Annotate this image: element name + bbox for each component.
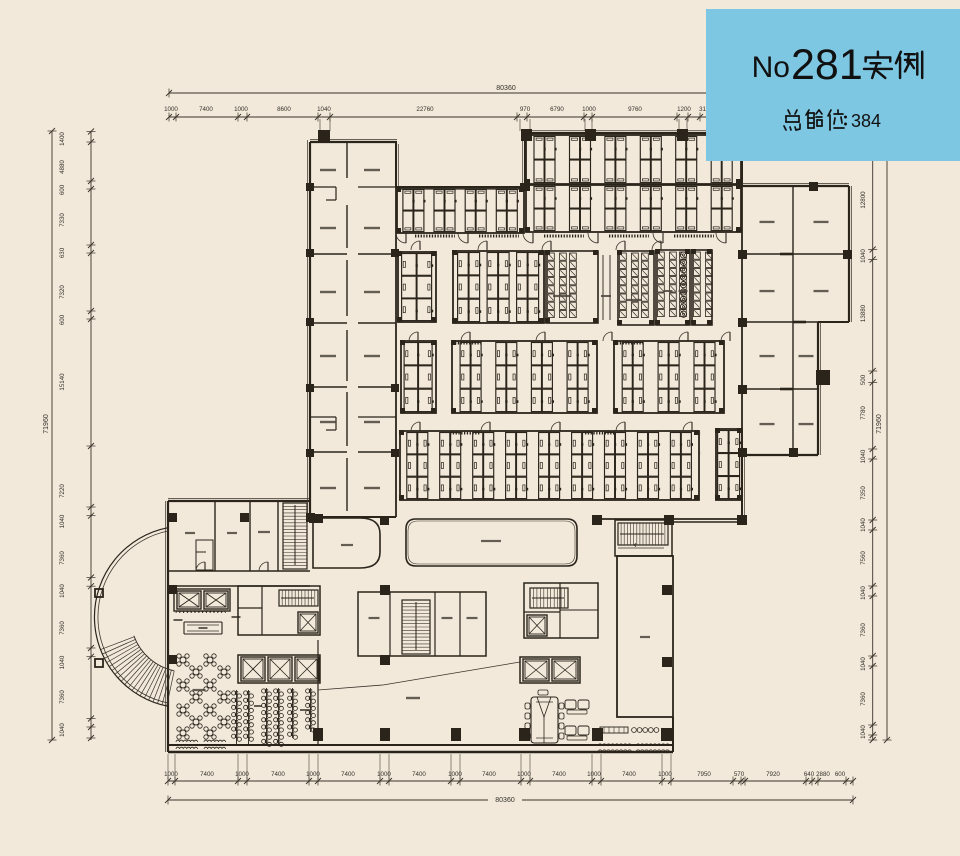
svg-text:7920: 7920 — [766, 771, 780, 778]
svg-text:7400: 7400 — [200, 771, 214, 778]
svg-text:630: 630 — [59, 247, 66, 258]
svg-text:7560: 7560 — [860, 551, 867, 565]
svg-text:7950: 7950 — [697, 771, 711, 778]
svg-text:7360: 7360 — [860, 623, 867, 637]
svg-text:1000: 1000 — [377, 771, 391, 778]
svg-text:71960: 71960 — [876, 414, 883, 434]
svg-text:1000: 1000 — [164, 771, 178, 778]
svg-text:1040: 1040 — [59, 514, 66, 528]
svg-text:1400: 1400 — [59, 132, 66, 146]
svg-text:1040: 1040 — [317, 106, 331, 113]
svg-text:12800: 12800 — [860, 191, 867, 209]
svg-text:7400: 7400 — [482, 771, 496, 778]
svg-text:1000: 1000 — [164, 106, 178, 113]
svg-text:4880: 4880 — [59, 160, 66, 174]
svg-text:1000: 1000 — [587, 771, 601, 778]
svg-text:7360: 7360 — [860, 692, 867, 706]
svg-text:7780: 7780 — [860, 406, 867, 420]
svg-text:281: 281 — [791, 41, 863, 89]
svg-text:1040: 1040 — [59, 584, 66, 598]
svg-text:7350: 7350 — [860, 486, 867, 500]
svg-text:7400: 7400 — [271, 771, 285, 778]
svg-text:7400: 7400 — [622, 771, 636, 778]
svg-text:2880: 2880 — [816, 771, 830, 778]
svg-text:1000: 1000 — [234, 106, 248, 113]
svg-text:15140: 15140 — [59, 373, 66, 391]
svg-text:1000: 1000 — [448, 771, 462, 778]
svg-text:1040: 1040 — [59, 723, 66, 737]
svg-text:9760: 9760 — [628, 106, 642, 113]
svg-text:1000: 1000 — [235, 771, 249, 778]
svg-text:600: 600 — [59, 314, 66, 325]
svg-text:1040: 1040 — [860, 657, 867, 671]
svg-text:7400: 7400 — [412, 771, 426, 778]
svg-text:80360: 80360 — [495, 797, 515, 804]
svg-text:970: 970 — [520, 106, 531, 113]
svg-text:1000: 1000 — [582, 106, 596, 113]
svg-text:1000: 1000 — [517, 771, 531, 778]
svg-text:7360: 7360 — [59, 621, 66, 635]
svg-text:640: 640 — [804, 771, 815, 778]
svg-text:570: 570 — [734, 771, 745, 778]
svg-text:1000: 1000 — [658, 771, 672, 778]
svg-text:1040: 1040 — [860, 725, 867, 739]
svg-text:1040: 1040 — [860, 586, 867, 600]
svg-text:7360: 7360 — [59, 551, 66, 565]
svg-text:1040: 1040 — [860, 449, 867, 463]
svg-text:600: 600 — [59, 184, 66, 195]
svg-text:1040: 1040 — [860, 518, 867, 532]
svg-text:7330: 7330 — [59, 213, 66, 227]
svg-text:No: No — [752, 51, 790, 84]
svg-text:384: 384 — [851, 111, 881, 131]
svg-text:13880: 13880 — [860, 304, 867, 322]
svg-text:8600: 8600 — [277, 106, 291, 113]
svg-text:600: 600 — [835, 771, 846, 778]
svg-text:7400: 7400 — [341, 771, 355, 778]
svg-text:1040: 1040 — [860, 249, 867, 263]
svg-text:7220: 7220 — [59, 484, 66, 498]
svg-text:6790: 6790 — [550, 106, 564, 113]
svg-text:80360: 80360 — [496, 85, 516, 92]
svg-text:7400: 7400 — [552, 771, 566, 778]
svg-text:1000: 1000 — [306, 771, 320, 778]
svg-text:1040: 1040 — [59, 655, 66, 669]
svg-text:7320: 7320 — [59, 285, 66, 299]
svg-text:7400: 7400 — [199, 106, 213, 113]
svg-text:500: 500 — [860, 374, 867, 385]
svg-text:71960: 71960 — [43, 414, 50, 434]
svg-text:7360: 7360 — [59, 690, 66, 704]
svg-text:22760: 22760 — [416, 106, 434, 113]
svg-text:1200: 1200 — [677, 106, 691, 113]
